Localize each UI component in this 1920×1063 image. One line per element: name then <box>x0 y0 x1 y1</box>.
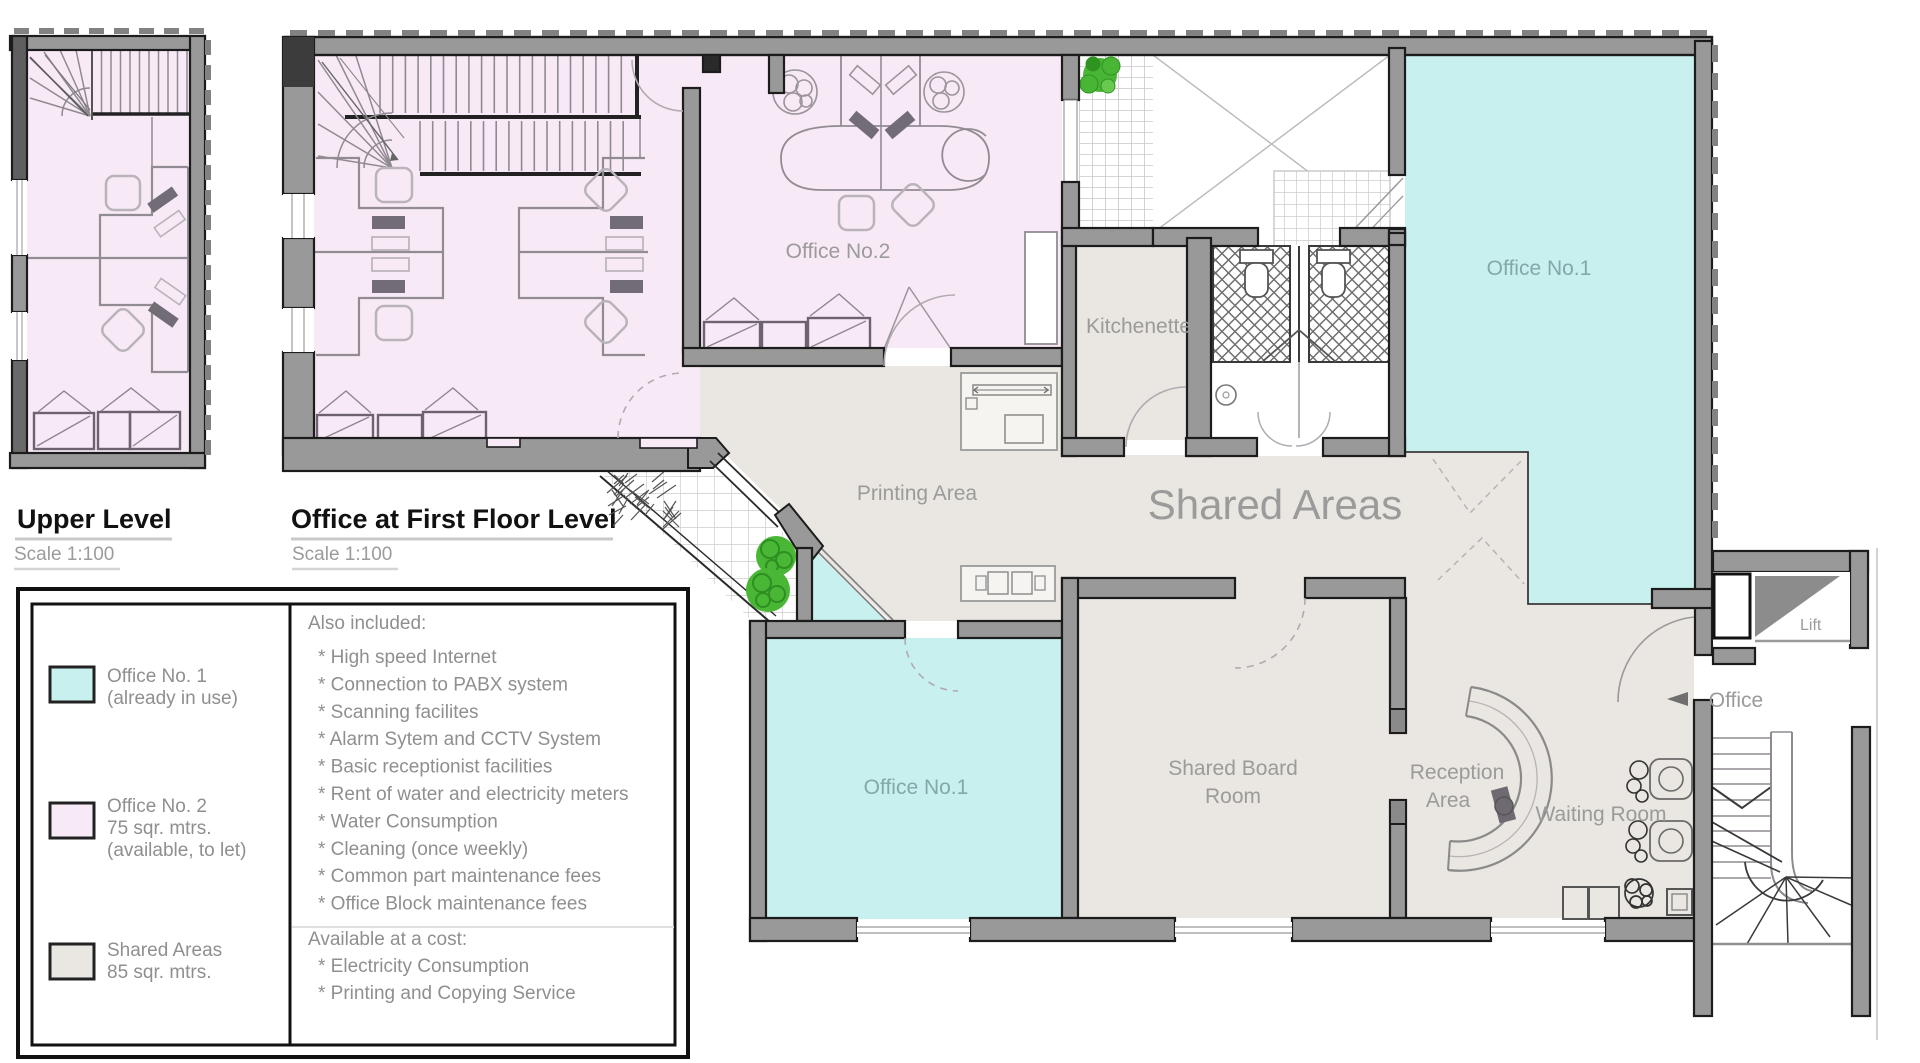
svg-text:Printing Area: Printing Area <box>857 482 978 505</box>
svg-text:Upper Level: Upper Level <box>17 504 172 534</box>
svg-text:Reception: Reception <box>1410 761 1505 784</box>
svg-text:Office No. 2: Office No. 2 <box>107 796 207 817</box>
svg-text:Shared Areas: Shared Areas <box>107 940 222 961</box>
svg-text:* Alarm Sytem and CCTV System: * Alarm Sytem and CCTV System <box>318 729 601 750</box>
svg-text:Shared Board: Shared Board <box>1168 757 1298 780</box>
svg-text:* Water Consumption: * Water Consumption <box>318 811 498 832</box>
svg-text:* Cleaning (once weekly): * Cleaning (once weekly) <box>318 839 528 860</box>
svg-text:Also included:: Also included: <box>308 613 426 634</box>
svg-text:Available at a cost:: Available at a cost: <box>308 929 467 950</box>
svg-text:* Basic receptionist facilitie: * Basic receptionist facilities <box>318 757 552 778</box>
svg-text:85 sqr. mtrs.: 85 sqr. mtrs. <box>107 962 212 983</box>
svg-text:* Electricity Consumption: * Electricity Consumption <box>318 956 529 977</box>
svg-text:* High speed Internet: * High speed Internet <box>318 647 497 668</box>
svg-text:Office No.1: Office No.1 <box>864 776 969 799</box>
svg-text:Office No.1: Office No.1 <box>1487 257 1592 280</box>
svg-text:Office at First Floor Level: Office at First Floor Level <box>291 504 617 534</box>
svg-text:Scale 1:100: Scale 1:100 <box>14 544 114 565</box>
svg-text:Room: Room <box>1205 785 1261 808</box>
svg-text:Kitchenette: Kitchenette <box>1086 315 1191 338</box>
svg-text:Area: Area <box>1426 789 1471 812</box>
svg-text:75 sqr. mtrs.: 75 sqr. mtrs. <box>107 818 212 839</box>
svg-text:* Printing and Copying Service: * Printing and Copying Service <box>318 983 576 1004</box>
svg-text:Office No.2: Office No.2 <box>786 240 891 263</box>
svg-text:* Scanning facilites: * Scanning facilites <box>318 702 479 723</box>
svg-text:Scale 1:100: Scale 1:100 <box>292 544 392 565</box>
svg-text:* Office Block maintenance fee: * Office Block maintenance fees <box>318 894 587 915</box>
svg-text:(available, to let): (available, to let) <box>107 840 246 861</box>
svg-text:(already in use): (already in use) <box>107 688 238 709</box>
svg-text:* Common part maintenance fees: * Common part maintenance fees <box>318 866 601 887</box>
svg-text:* Connection to PABX system: * Connection to PABX system <box>318 674 568 695</box>
svg-text:Shared Areas: Shared Areas <box>1148 481 1403 528</box>
svg-text:Waiting Room: Waiting Room <box>1535 803 1666 826</box>
svg-text:* Rent of water and electricit: * Rent of water and electricity meters <box>318 784 628 805</box>
svg-text:Office: Office <box>1709 689 1763 712</box>
svg-text:Office No. 1: Office No. 1 <box>107 666 207 687</box>
svg-text:Lift: Lift <box>1800 617 1822 634</box>
